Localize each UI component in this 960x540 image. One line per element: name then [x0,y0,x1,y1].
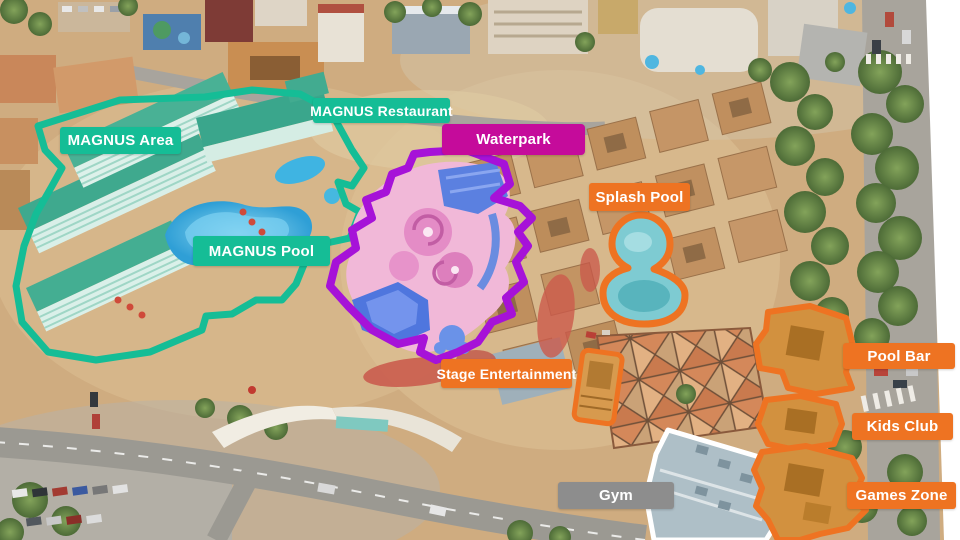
splash-pool-shadow [618,280,670,312]
kids-club-building [758,396,842,450]
label-games-zone: Games Zone [847,482,956,509]
label-splash-pool: Splash Pool [589,183,690,211]
resort-map-slide: MAGNUS Area MAGNUS Restaurant MAGNUS Poo… [0,0,960,540]
stage-building [573,350,622,425]
label-kids-club: Kids Club [852,413,953,440]
label-magnus-pool: MAGNUS Pool [193,236,330,266]
label-waterpark: Waterpark [442,124,585,155]
splash-pool-highlight [624,232,652,252]
label-gym: Gym [558,482,674,509]
label-stage-entertainment: Stage Entertainment [441,359,572,388]
label-pool-bar: Pool Bar [843,343,955,369]
label-magnus-area: MAGNUS Area [60,127,181,154]
label-magnus-restaurant: MAGNUS Restaurant [313,98,450,123]
aerial-photo [0,0,960,540]
